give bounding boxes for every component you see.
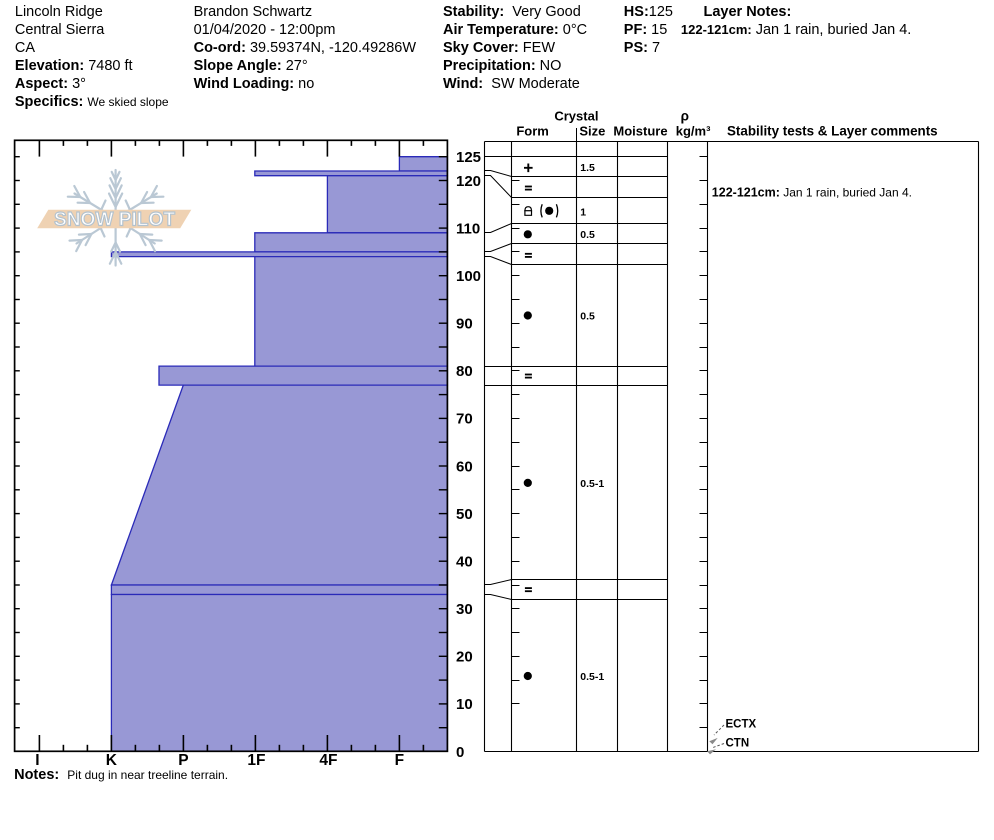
svg-text:1F: 1F xyxy=(247,752,265,769)
svg-text:30: 30 xyxy=(456,601,473,618)
svg-text:Size: Size xyxy=(579,124,605,139)
svg-text:120: 120 xyxy=(456,173,481,190)
svg-text:1.5: 1.5 xyxy=(580,162,595,174)
svg-text:100: 100 xyxy=(456,268,481,285)
svg-text:50: 50 xyxy=(456,506,473,523)
svg-text:SNOW PILOT: SNOW PILOT xyxy=(54,209,175,231)
svg-text:0.5-1: 0.5-1 xyxy=(580,478,604,490)
svg-text:CTN: CTN xyxy=(726,738,750,750)
svg-text:0.5-1: 0.5-1 xyxy=(580,671,604,683)
svg-text:40: 40 xyxy=(456,554,473,571)
svg-text:10: 10 xyxy=(456,696,473,713)
svg-text:0: 0 xyxy=(456,744,464,761)
svg-text:70: 70 xyxy=(456,411,473,428)
svg-text:20: 20 xyxy=(456,649,473,666)
svg-text:80: 80 xyxy=(456,363,473,380)
svg-text:1: 1 xyxy=(580,206,586,218)
svg-text:kg/m³: kg/m³ xyxy=(676,124,711,139)
svg-text:125: 125 xyxy=(456,149,481,166)
svg-text:0.5: 0.5 xyxy=(580,310,595,322)
svg-text:Moisture: Moisture xyxy=(613,124,667,139)
svg-text:Stability tests & Layer commen: Stability tests & Layer comments xyxy=(727,124,938,139)
svg-text:90: 90 xyxy=(456,316,473,333)
svg-text:122-121cm: Jan 1 rain, buried: 122-121cm: Jan 1 rain, buried Jan 4. xyxy=(712,186,912,200)
svg-text:110: 110 xyxy=(456,220,480,237)
svg-text:60: 60 xyxy=(456,458,473,475)
svg-text:Crystal: Crystal xyxy=(554,109,598,124)
svg-text:ρ: ρ xyxy=(681,109,689,124)
svg-text:Form: Form xyxy=(516,124,549,139)
svg-text:F: F xyxy=(395,752,404,769)
svg-text:4F: 4F xyxy=(319,752,337,769)
svg-text:0.5: 0.5 xyxy=(580,229,595,241)
svg-text:ECTX: ECTX xyxy=(726,719,757,731)
